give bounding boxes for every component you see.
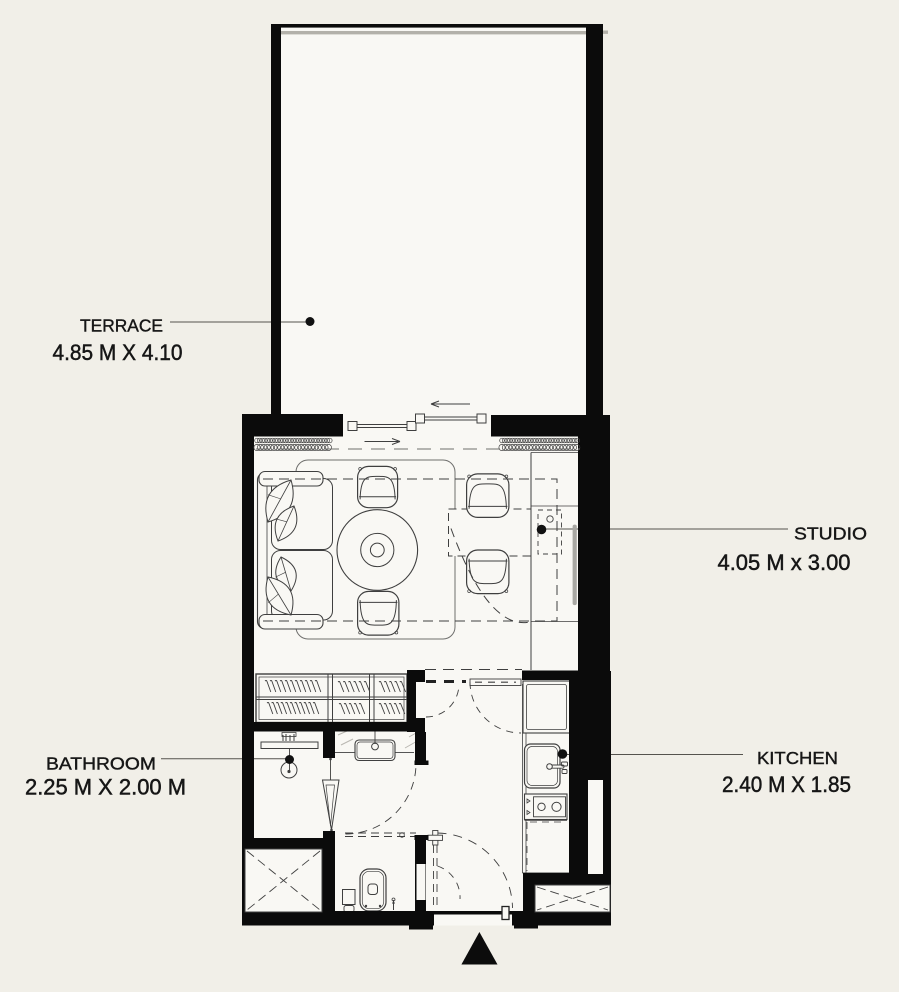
svg-text:2.40 M X 1.85: 2.40 M X 1.85 (722, 772, 851, 797)
svg-text:BATHROOM: BATHROOM (46, 754, 156, 774)
svg-text:STUDIO: STUDIO (794, 524, 867, 544)
svg-text:2.25 M X 2.00 M: 2.25 M X 2.00 M (25, 775, 186, 800)
svg-text:KITCHEN: KITCHEN (757, 748, 838, 768)
svg-text:4.05 M x 3.00: 4.05 M x 3.00 (718, 550, 851, 575)
svg-text:4.85 M X 4.10: 4.85 M X 4.10 (53, 340, 183, 365)
svg-text:TERRACE: TERRACE (80, 316, 163, 336)
